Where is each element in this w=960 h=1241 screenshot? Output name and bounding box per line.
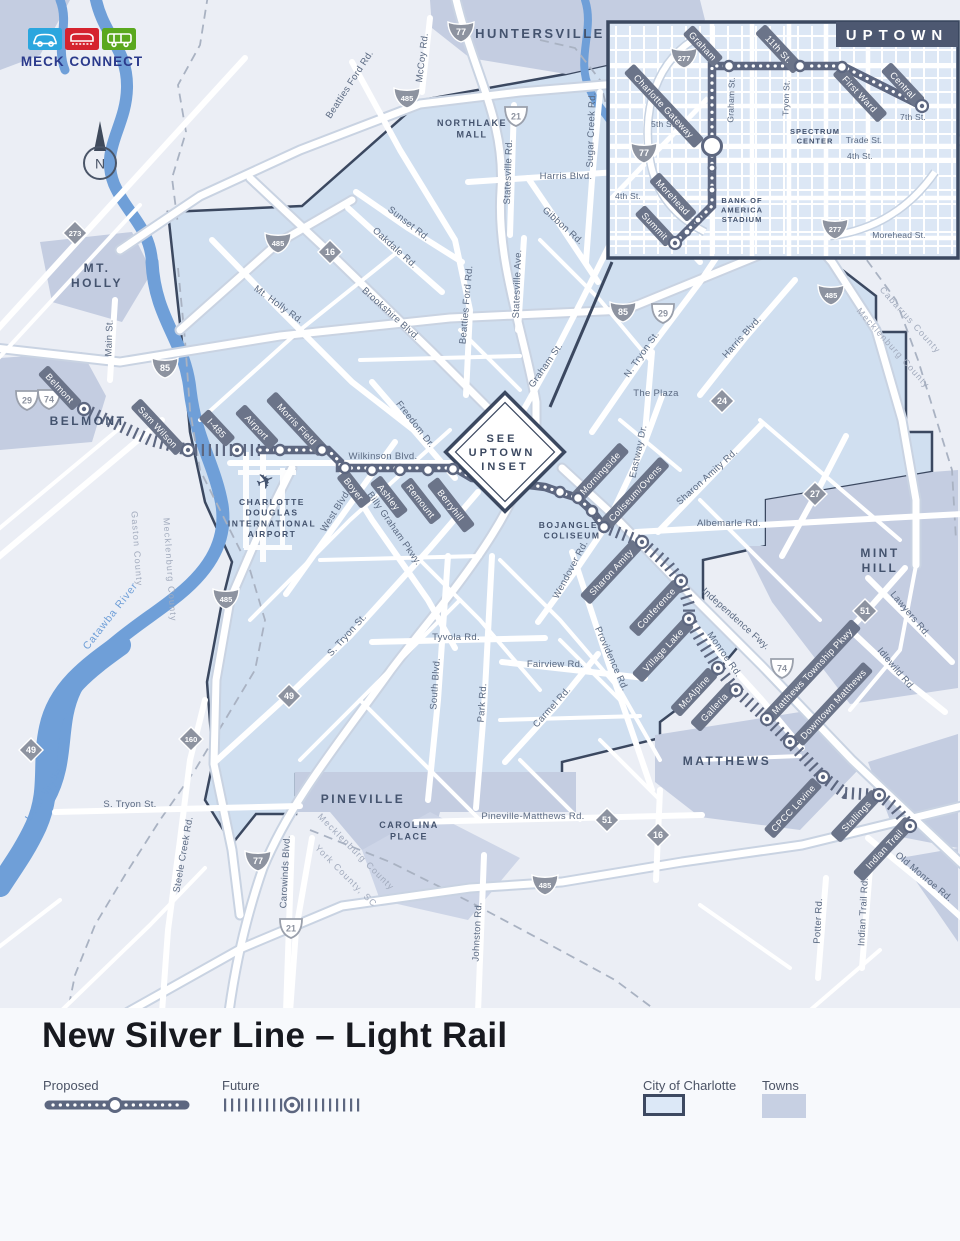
svg-text:51: 51: [860, 606, 870, 616]
svg-text:29: 29: [658, 309, 668, 319]
see-inset-line2: UPTOWN: [469, 447, 536, 459]
svg-text:74: 74: [777, 664, 787, 674]
inset-street-trade-st: Trade St.: [846, 135, 882, 145]
station-proposed: [599, 522, 609, 532]
legend-proposed-label: Proposed: [43, 1078, 99, 1093]
station-proposed: [837, 62, 847, 72]
car-icon: [28, 28, 62, 50]
road-label-wilkinson-blvd: Wilkinson Blvd.: [349, 451, 418, 462]
legend-towns-swatch: [762, 1094, 806, 1118]
svg-text:277: 277: [829, 225, 842, 234]
legend-future-sample: [222, 1094, 372, 1116]
svg-text:273: 273: [69, 229, 82, 238]
station-proposed: [587, 506, 597, 516]
svg-text:485: 485: [220, 595, 233, 604]
station-proposed: [724, 61, 734, 71]
svg-text:77: 77: [253, 856, 263, 866]
station-future: [669, 237, 681, 249]
svg-text:85: 85: [618, 307, 628, 317]
legend-towns-label: Towns: [762, 1078, 799, 1093]
uptown-inset-title: UPTOWN: [846, 27, 948, 44]
station-proposed: [317, 445, 327, 455]
station-future: [904, 820, 916, 832]
place-label-bojangles-coliseum: BOJANGLESCOLISEUM: [539, 520, 605, 541]
road-label-statesville-rd: Statesville Rd.: [502, 139, 515, 205]
svg-text:485: 485: [401, 94, 414, 103]
legend-city-label: City of Charlotte: [643, 1078, 736, 1093]
legend-proposed-sample: [43, 1094, 193, 1116]
station-future: [712, 662, 724, 674]
svg-text:16: 16: [653, 830, 663, 840]
meck-connect-logo: MECK CONNECT: [21, 28, 143, 69]
uptown-inset: Graham St.Tryon St.5th St.7th St.Trade S…: [608, 22, 958, 258]
inset-station-small: [709, 187, 716, 194]
svg-text:29: 29: [22, 396, 32, 406]
svg-text:77: 77: [639, 148, 649, 158]
station-proposed: [395, 465, 405, 475]
station-proposed: [448, 464, 458, 474]
station-future: [730, 684, 742, 696]
silver-line-map-page: SEE UPTOWN INSET McCoy Rd.Beatties Ford …: [0, 0, 960, 1241]
road-label-tyvola-rd: Tyvola Rd.: [432, 632, 480, 643]
station-future: [182, 444, 194, 456]
see-inset-line3: INSET: [481, 461, 528, 473]
station-proposed: [340, 463, 350, 473]
svg-text:85: 85: [160, 363, 170, 373]
compass-n-label: N: [95, 156, 105, 172]
map-title: New Silver Line – Light Rail: [42, 1016, 507, 1056]
svg-text:27: 27: [810, 489, 820, 499]
road-label-the-plaza: The Plaza: [633, 388, 679, 399]
station-proposed: [367, 465, 377, 475]
inset-place-bank-of-america-stadium: BANK OFAMERICASTADIUM: [721, 196, 763, 224]
see-inset-line1: SEE: [486, 433, 517, 445]
svg-text:485: 485: [825, 291, 838, 300]
station-future: [873, 789, 885, 801]
town-label-belmont: BELMONT: [50, 414, 127, 428]
station-future: [761, 713, 773, 725]
svg-text:51: 51: [602, 815, 612, 825]
station-future: [916, 100, 928, 112]
inset-street-graham-st: Graham St.: [725, 77, 737, 123]
train-icon: [65, 28, 99, 50]
inset-station-small: [695, 217, 702, 224]
station-proposed: [555, 487, 565, 497]
station-proposed: [573, 493, 583, 503]
svg-text:21: 21: [511, 112, 521, 122]
svg-text:485: 485: [539, 881, 552, 890]
town-label-huntersville: HUNTERSVILLE: [475, 26, 605, 41]
road-label-pineville-matthews-rd: Pineville-Matthews Rd.: [481, 811, 584, 822]
road-label-s-tryon-st: S. Tryon St.: [103, 799, 156, 810]
svg-text:485: 485: [272, 239, 285, 248]
station-future: [784, 736, 796, 748]
road-label-albemarle-rd: Albemarle Rd.: [697, 518, 761, 529]
station-proposed: [423, 465, 433, 475]
station-proposed: [795, 61, 805, 71]
svg-text:277: 277: [678, 54, 691, 63]
svg-text:160: 160: [185, 735, 198, 744]
inset-street-4th-st: 4th St.: [615, 191, 641, 201]
svg-text:77: 77: [456, 27, 466, 37]
svg-text:16: 16: [325, 247, 335, 257]
inset-street-7th-st: 7th St.: [900, 112, 926, 122]
brand-name: MECK CONNECT: [21, 54, 143, 69]
legend-band: New Silver Line – Light Rail: [0, 1008, 960, 1241]
station-future: [683, 613, 695, 625]
station-proposed: [275, 445, 285, 455]
svg-text:74: 74: [44, 395, 54, 405]
station-future: [675, 575, 687, 587]
inset-street-morehead-st: Morehead St.: [872, 230, 925, 240]
station-future: [817, 771, 829, 783]
town-label-matthews: MATTHEWS: [683, 754, 771, 768]
town-label-pineville: PINEVILLE: [321, 792, 406, 806]
svg-text:49: 49: [26, 745, 36, 755]
legend-city-swatch: [643, 1094, 685, 1116]
road-label-main-st: Main St.: [103, 319, 115, 357]
svg-text:21: 21: [286, 924, 296, 934]
inset-street-tryon-st: Tryon St.: [780, 80, 791, 116]
inset-station-hub-gateway: [703, 137, 722, 156]
legend-future-label: Future: [222, 1078, 260, 1093]
station-future: [78, 403, 90, 415]
station-future: [636, 536, 648, 548]
road-label-fairview-rd: Fairview Rd.: [527, 659, 583, 670]
town-label-mint-hill: MINTHILL: [860, 546, 899, 575]
inset-station-small: [684, 229, 691, 236]
road-label-harris-blvd: Harris Blvd.: [540, 171, 593, 182]
svg-text:24: 24: [717, 396, 727, 406]
inset-station-small: [709, 165, 716, 172]
inset-street-4th-st: 4th St.: [847, 151, 873, 161]
station-future: [231, 444, 243, 456]
inset-place-spectrum-center: SPECTRUMCENTER: [790, 127, 840, 145]
svg-text:49: 49: [284, 691, 294, 701]
